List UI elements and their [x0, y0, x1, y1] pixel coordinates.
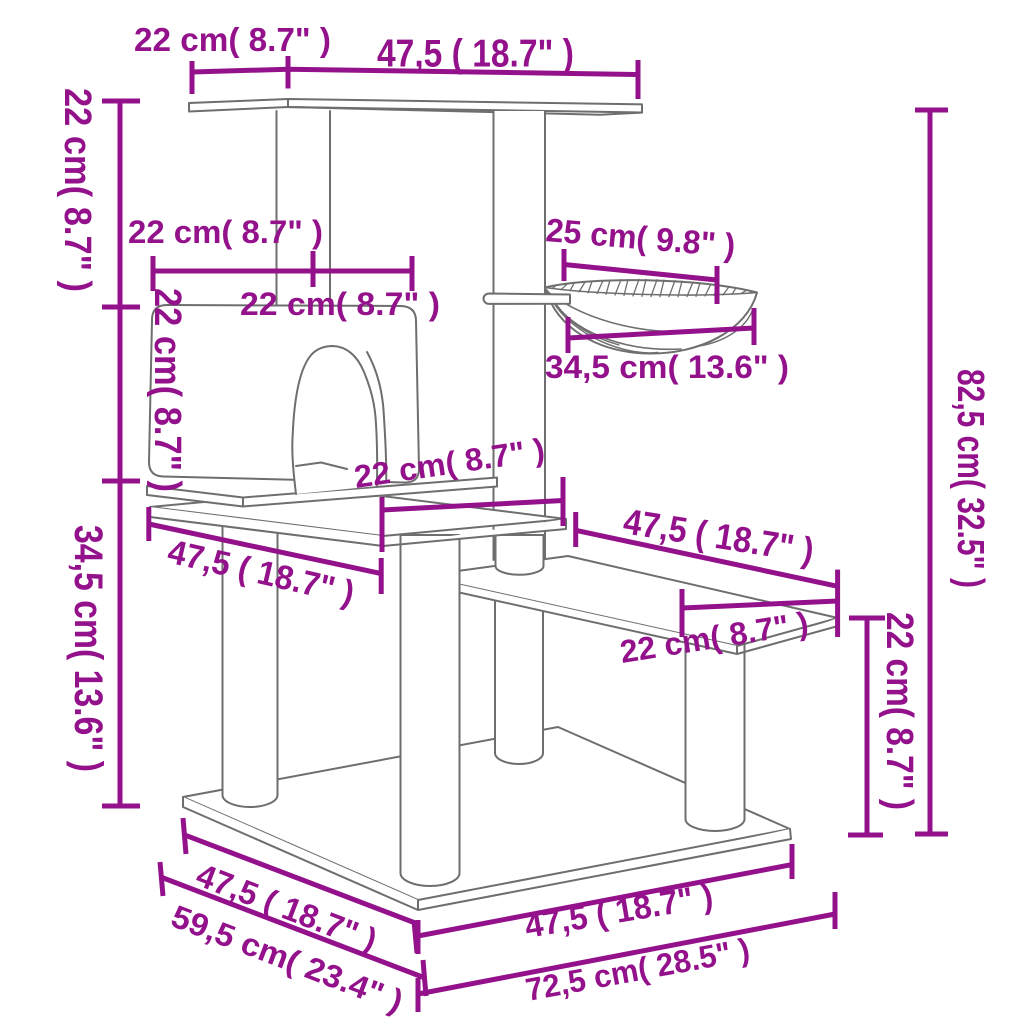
svg-text:22 cm( 8.7" ): 22 cm( 8.7" ) — [128, 214, 323, 250]
svg-text:22 cm( 8.7" ): 22 cm( 8.7" ) — [240, 286, 440, 322]
svg-text:22 cm( 8.7" ): 22 cm( 8.7" ) — [878, 612, 920, 810]
svg-text:22 cm( 8.7" ): 22 cm( 8.7" ) — [146, 288, 188, 492]
svg-text:34,5 cm( 13.6" ): 34,5 cm( 13.6" ) — [66, 525, 110, 772]
svg-text:22 cm( 8.7" ): 22 cm( 8.7" ) — [56, 88, 98, 292]
svg-text:82,5 cm( 32.5" ): 82,5 cm( 32.5" ) — [949, 369, 991, 588]
svg-text:47,5 ( 18.7" ): 47,5 ( 18.7" ) — [377, 33, 574, 76]
svg-text:34,5 cm( 13.6" ): 34,5 cm( 13.6" ) — [545, 349, 789, 385]
svg-text:22 cm( 8.7" ): 22 cm( 8.7" ) — [134, 21, 331, 58]
